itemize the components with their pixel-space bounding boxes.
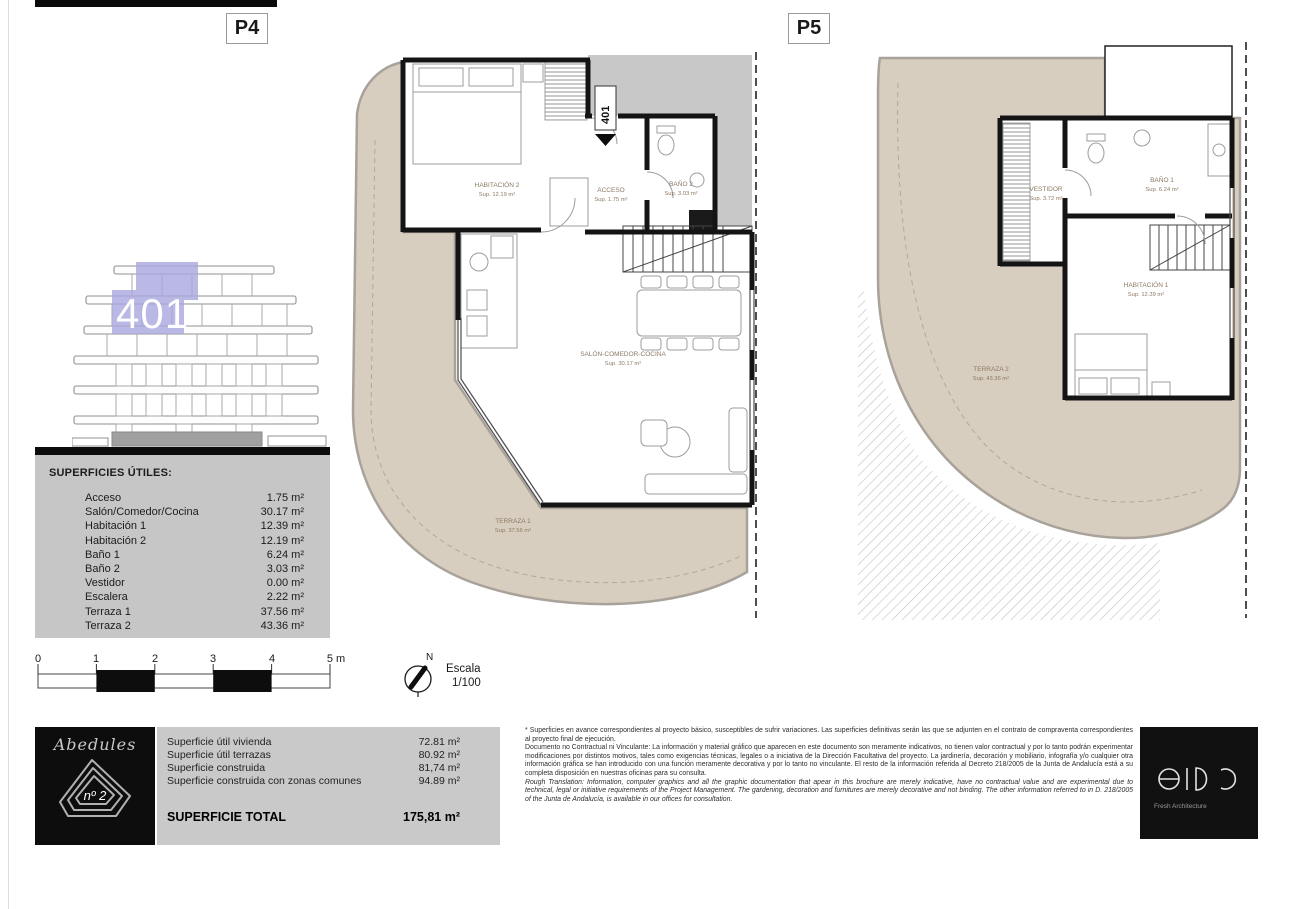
table-row: Baño 23.03 m²	[49, 562, 304, 576]
label-acceso-sup: Sup. 1.75 m²	[594, 197, 627, 203]
summary-value: 80.92 m²	[419, 749, 460, 762]
elevation-base	[112, 432, 262, 446]
scale-tick-3: 3	[210, 653, 216, 665]
table-row: Habitación 212.19 m²	[49, 534, 304, 548]
row-value: 2.22 m²	[267, 590, 304, 604]
label-habitacion2: HABITACIÓN 2	[475, 180, 520, 189]
label-salon: SALÓN-COMEDOR-COCINA	[580, 349, 666, 358]
label-habitacion1: HABITACIÓN 1	[1124, 280, 1169, 289]
escala-ratio: 1/100	[446, 676, 481, 690]
wardrobe-hatch-hab2	[545, 62, 587, 120]
table-row: Habitación 112.39 m²	[49, 519, 304, 533]
page-edge-line	[8, 0, 9, 909]
disclaimer-paragraph-1: * Superficies en avance correspondientes…	[525, 727, 1133, 744]
row-value: 3.03 m²	[267, 562, 304, 576]
summary-value: 72.81 m²	[419, 736, 460, 749]
label-bano2-sup: Sup. 3.03 m²	[664, 191, 697, 197]
elevation-step-right	[268, 436, 326, 446]
row-label: Salón/Comedor/Cocina	[49, 505, 199, 519]
summary-total-value: 175,81 m²	[403, 810, 460, 824]
summary-row: Superficie útil terrazas80.92 m²	[167, 749, 460, 762]
scale-segment-black-2	[213, 670, 271, 692]
project-number: nº 2	[84, 788, 108, 803]
svg-text:401: 401	[600, 106, 612, 124]
disclaimer-paragraph-2: Documento no Contractual ni Vinculante: …	[525, 744, 1133, 778]
table-row: Terraza 243.36 m²	[49, 619, 304, 633]
surface-summary-box: Superficie útil vivienda72.81 m² Superfi…	[157, 727, 500, 845]
floorplan-p4: 401 HABITACIÓN 2 Sup. 12.19 m² ACCESO Su…	[345, 50, 760, 620]
table-row: Vestidor0.00 m²	[49, 576, 304, 590]
summary-row: Superficie construida81,74 m²	[167, 762, 460, 775]
table-row: Salón/Comedor/Cocina30.17 m²	[49, 505, 304, 519]
row-label: Baño 1	[49, 548, 120, 562]
row-value: 1.75 m²	[267, 491, 304, 505]
label-vestidor: VESTIDOR	[1029, 186, 1063, 193]
north-arrow-icon: N	[398, 648, 444, 700]
row-label: Terraza 1	[49, 605, 131, 619]
scale-tick-1: 1	[93, 653, 99, 665]
scale-bar: 0 1 2 3 4 5 m	[30, 650, 390, 700]
row-label: Vestidor	[49, 576, 125, 590]
summary-label: Superficie útil terrazas	[167, 749, 271, 762]
plan-label-p5: P5	[788, 13, 830, 44]
label-terraza2-sup: Sup. 43.36 m²	[973, 376, 1009, 382]
row-label: Acceso	[49, 491, 121, 505]
disclaimer-paragraph-3: Rough Translation: Information, computer…	[525, 779, 1133, 805]
row-label: Terraza 2	[49, 619, 131, 633]
plan-label-p4: P4	[226, 13, 268, 44]
elevation-ground-bar	[35, 447, 330, 455]
header-bar-remnant	[35, 0, 277, 7]
label-bano1: BAÑO 1	[1150, 175, 1174, 184]
plan-label-p4-text: P4	[235, 17, 259, 40]
project-emblem-icon: nº 2	[52, 754, 138, 826]
scale-segment-black-1	[96, 670, 154, 692]
table-row: Escalera2.22 m²	[49, 590, 304, 604]
row-label: Habitación 1	[49, 519, 146, 533]
scale-tick-5: 5 m	[327, 653, 345, 665]
project-name: Abedules	[54, 735, 137, 754]
summary-label: Superficie construida con zonas comunes	[167, 775, 361, 788]
summary-total-label: SUPERFICIE TOTAL	[167, 810, 286, 824]
row-value: 12.19 m²	[261, 534, 304, 548]
wardrobe-hatch-vestidor	[1003, 123, 1030, 261]
scale-tick-0: 0	[35, 653, 41, 665]
label-bano1-sup: Sup. 6.24 m²	[1145, 187, 1178, 193]
row-label: Baño 2	[49, 562, 120, 576]
label-acceso: ACCESO	[597, 187, 624, 194]
entrance-tag-401: 401	[595, 86, 616, 146]
row-value: 12.39 m²	[261, 519, 304, 533]
row-label: Escalera	[49, 590, 128, 604]
summary-value: 81,74 m²	[419, 762, 460, 775]
table-row: Terraza 137.56 m²	[49, 605, 304, 619]
architect-tagline: Fresh Architecture	[1140, 803, 1207, 810]
superficies-utiles-table: SUPERFICIES ÚTILES: Acceso1.75 m² Salón/…	[35, 455, 330, 638]
label-terraza1-sup: Sup. 37.56 m²	[495, 528, 531, 534]
scale-tick-2: 2	[152, 653, 158, 665]
label-bano2: BAÑO 2	[669, 179, 693, 188]
summary-value: 94.89 m²	[419, 775, 460, 788]
upper-volume-outline	[1105, 46, 1232, 118]
label-terraza2: TERRAZA 2	[973, 366, 1009, 373]
superficies-title: SUPERFICIES ÚTILES:	[49, 467, 304, 479]
scale-tick-4: 4	[269, 653, 275, 665]
unit-401-text: 401	[116, 290, 189, 337]
project-logo-box: Abedules nº 2	[35, 727, 155, 845]
row-value: 6.24 m²	[267, 548, 304, 562]
eido-logo-icon	[1153, 757, 1245, 801]
legal-disclaimer: * Superficies en avance correspondientes…	[525, 727, 1133, 804]
north-letter: N	[426, 652, 433, 663]
table-row: Baño 16.24 m²	[49, 548, 304, 562]
summary-total-row: SUPERFICIE TOTAL175,81 m²	[167, 810, 460, 824]
row-label: Habitación 2	[49, 534, 146, 548]
row-value: 37.56 m²	[261, 605, 304, 619]
building-elevation: 401	[72, 252, 332, 452]
floorplan-p5: VESTIDOR Sup. 3.72 m² BAÑO 1 Sup. 6.24 m…	[850, 38, 1255, 623]
label-terraza1: TERRAZA 1	[495, 518, 531, 525]
architect-logo-box: Fresh Architecture	[1140, 727, 1258, 839]
label-habitacion1-sup: Sup. 12.39 m²	[1128, 292, 1164, 298]
row-value: 43.36 m²	[261, 619, 304, 633]
escala-word: Escala	[446, 662, 481, 676]
label-salon-sup: Sup. 30.17 m²	[605, 361, 641, 367]
stairs-p5	[1150, 225, 1230, 270]
summary-row: Superficie construida con zonas comunes9…	[167, 775, 460, 788]
elevation-step-left	[72, 438, 108, 446]
label-habitacion2-sup: Sup. 12.19 m²	[479, 192, 515, 198]
summary-label: Superficie útil vivienda	[167, 736, 271, 749]
plan-label-p5-text: P5	[797, 17, 821, 40]
brochure-page: P4 P5	[0, 0, 1290, 909]
label-vestidor-sup: Sup. 3.72 m²	[1029, 196, 1062, 202]
escala-note: Escala 1/100	[446, 662, 481, 690]
summary-row: Superficie útil vivienda72.81 m²	[167, 736, 460, 749]
row-value: 0.00 m²	[267, 576, 304, 590]
table-row: Acceso1.75 m²	[49, 491, 304, 505]
row-value: 30.17 m²	[261, 505, 304, 519]
summary-label: Superficie construida	[167, 762, 265, 775]
